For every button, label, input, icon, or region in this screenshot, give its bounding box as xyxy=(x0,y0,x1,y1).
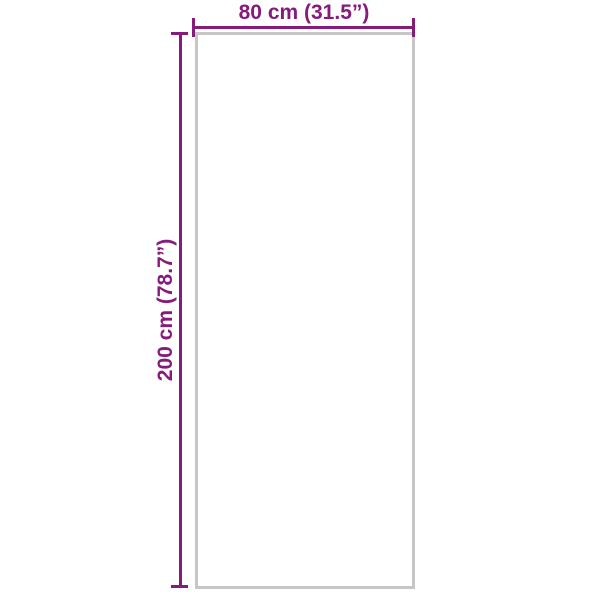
height-dimension-tick-top xyxy=(171,32,188,35)
product-outline-rectangle xyxy=(195,32,415,589)
width-dimension-label: 80 cm (31.5”) xyxy=(193,1,415,25)
height-dimension-tick-bottom xyxy=(171,585,188,588)
dimension-diagram: 80 cm (31.5”) 200 cm (78.7”) xyxy=(0,0,600,600)
height-dimension-line xyxy=(179,33,182,588)
width-dimension-line xyxy=(193,26,415,29)
height-dimension-label: 200 cm (78.7”) xyxy=(154,239,178,381)
